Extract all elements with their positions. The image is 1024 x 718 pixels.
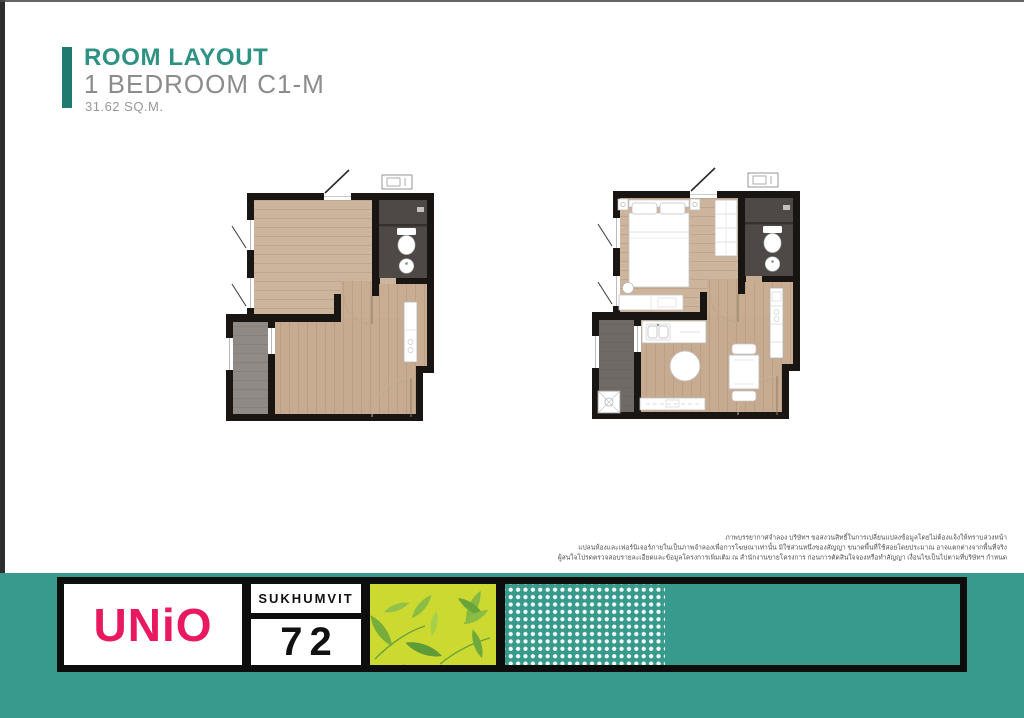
leaf-illustration bbox=[370, 584, 496, 665]
disclaimer-line: ผู้สนใจโปรดตรวจสอบรายละเอียดและข้อมูลโคร… bbox=[557, 553, 1007, 563]
dining-round-table bbox=[670, 351, 700, 381]
street-name: SUKHUMVIT bbox=[251, 584, 361, 613]
bathroom bbox=[745, 198, 793, 276]
ac-condenser-unit bbox=[382, 175, 412, 189]
project-logo-strip: UNiO SUKHUMVIT 72 bbox=[57, 577, 967, 672]
disclaimer-line: แปลนห้องและเฟอร์นิเจอร์ภายในเป็นภาพจำลอง… bbox=[557, 543, 1007, 553]
bathroom bbox=[379, 200, 427, 278]
ac-condenser-unit bbox=[748, 173, 778, 187]
header-accent-bar bbox=[62, 47, 72, 108]
dot-pattern bbox=[505, 584, 665, 665]
kitchen-counter bbox=[770, 288, 783, 358]
dining-set bbox=[729, 344, 759, 401]
kitchen-counter bbox=[404, 302, 417, 362]
page-title: ROOM LAYOUT bbox=[84, 44, 268, 72]
unit-type-heading: 1 BEDROOM C1-M bbox=[84, 69, 325, 100]
kitchen-island bbox=[642, 321, 706, 343]
tv-console bbox=[640, 398, 705, 410]
unio-logo-box: UNiO bbox=[64, 584, 242, 665]
floorplan-furnished bbox=[588, 162, 820, 428]
page-top-edge bbox=[0, 0, 1024, 2]
teal-pattern-box bbox=[505, 584, 960, 665]
brochure-page: { "header": { "title": "ROOM LAYOUT", "s… bbox=[0, 0, 1024, 718]
washing-machine bbox=[598, 391, 620, 413]
disclaimer: ภาพบรรยากาศจำลอง บริษัทฯ ขอสงวนสิทธิ์ในก… bbox=[557, 533, 1007, 563]
brand-name: UNiO bbox=[94, 598, 213, 652]
unit-area-label: 31.62 SQ.M. bbox=[85, 99, 163, 114]
street-box: SUKHUMVIT 72 bbox=[251, 584, 361, 665]
street-number: 72 bbox=[251, 619, 361, 665]
leaf-pattern-box bbox=[370, 584, 496, 665]
disclaimer-line: ภาพบรรยากาศจำลอง บริษัทฯ ขอสงวนสิทธิ์ในก… bbox=[557, 533, 1007, 543]
wardrobe bbox=[715, 200, 737, 256]
floorplan-unfurnished bbox=[222, 164, 454, 430]
